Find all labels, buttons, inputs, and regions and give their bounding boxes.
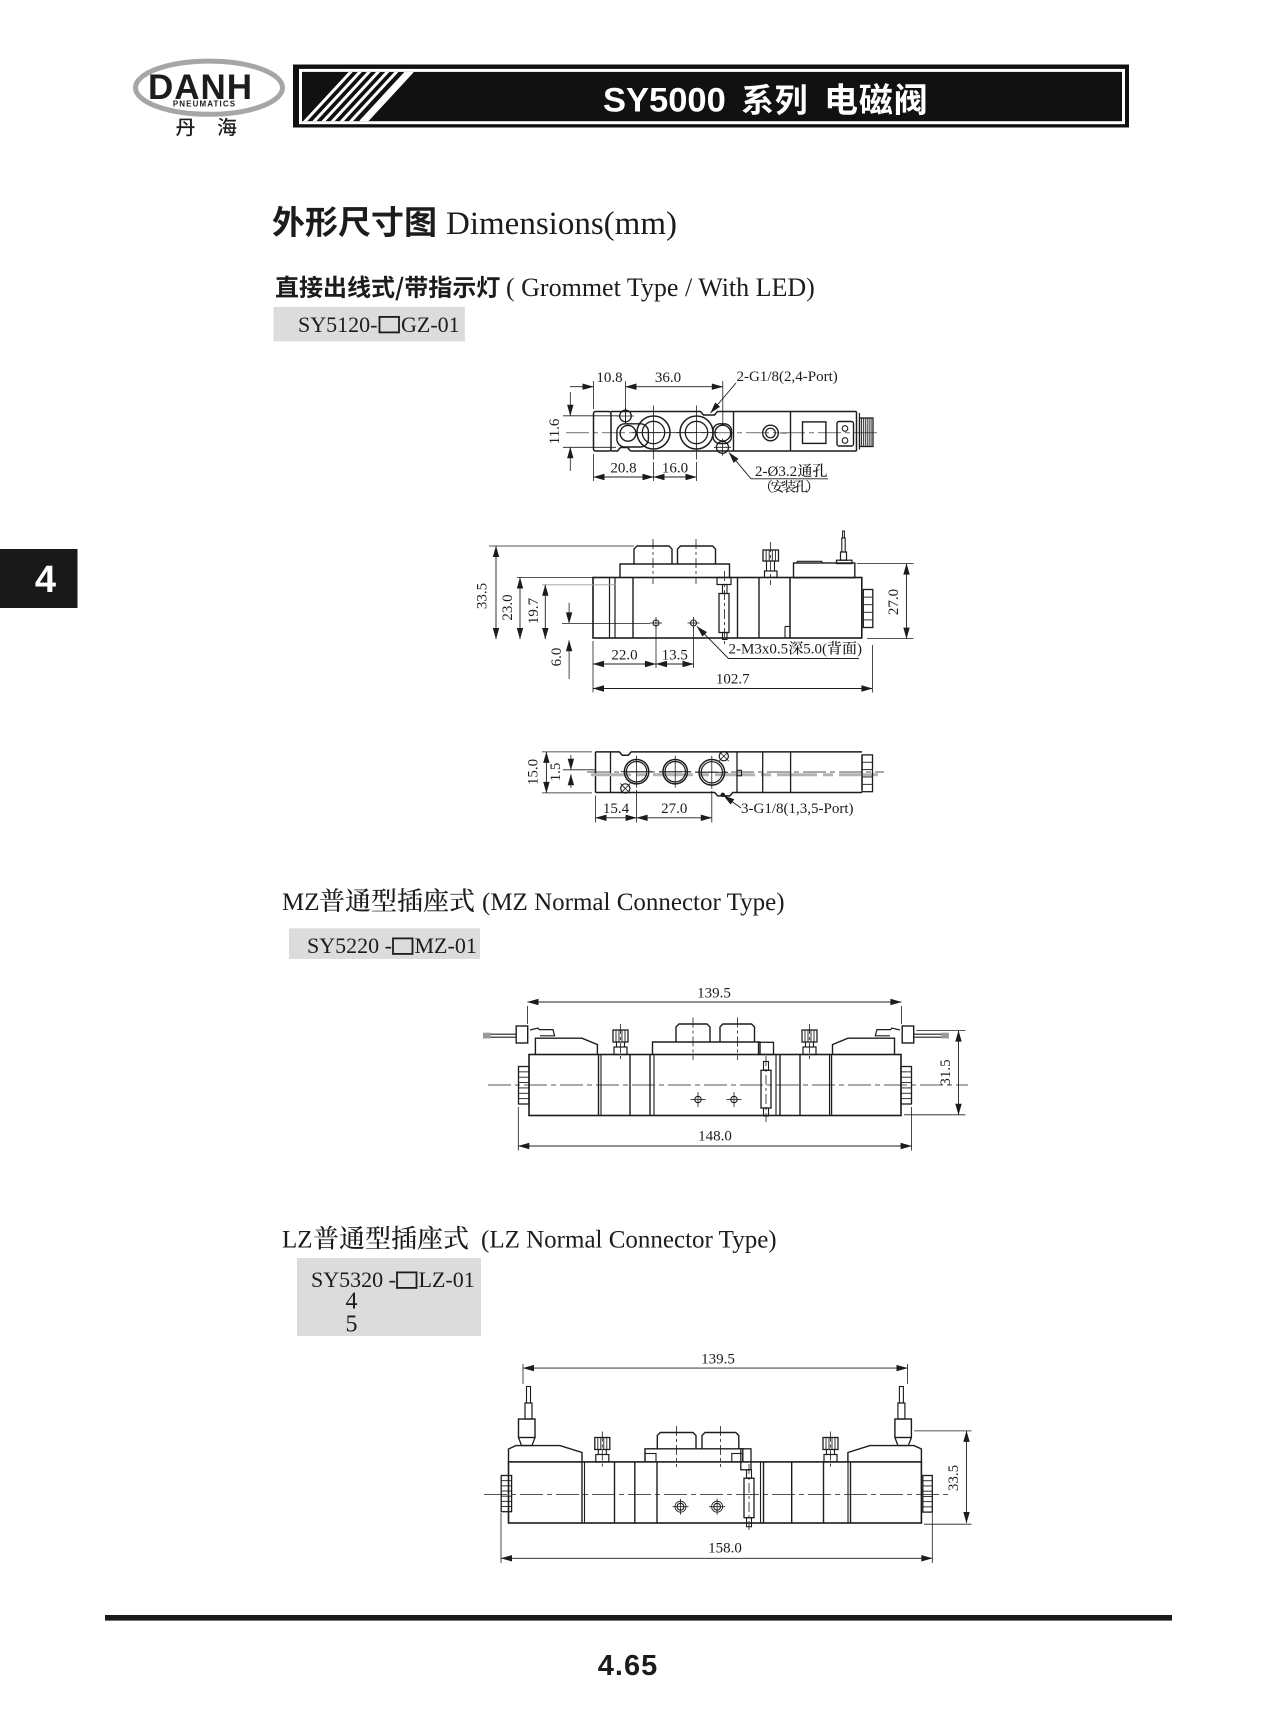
- svg-text:11.6: 11.6: [547, 418, 563, 444]
- svg-text:MZ: MZ: [282, 889, 320, 916]
- svg-text:4: 4: [35, 559, 56, 601]
- svg-text:SY5220 -: SY5220 -: [307, 933, 392, 958]
- svg-text:22.0: 22.0: [611, 648, 637, 664]
- svg-text:102.7: 102.7: [716, 672, 750, 688]
- svg-text:1.5: 1.5: [548, 763, 564, 782]
- svg-text:15.0: 15.0: [525, 759, 541, 785]
- svg-text:SY5120-: SY5120-: [298, 312, 377, 337]
- svg-text:33.5: 33.5: [946, 1465, 962, 1491]
- svg-text:16.0: 16.0: [662, 461, 688, 477]
- svg-text:LZ: LZ: [282, 1227, 313, 1254]
- svg-text:2-G1/8(2,4-Port): 2-G1/8(2,4-Port): [737, 369, 838, 385]
- svg-text:27.0: 27.0: [661, 801, 687, 817]
- svg-text:19.7: 19.7: [526, 597, 542, 624]
- svg-text:139.5: 139.5: [697, 986, 731, 1002]
- svg-text:23.0: 23.0: [500, 594, 516, 620]
- svg-text:2-Ø3.2: 2-Ø3.2: [755, 464, 797, 480]
- svg-text:(MZ Normal Connector Type): (MZ Normal Connector Type): [482, 889, 785, 916]
- svg-text:139.5: 139.5: [701, 1352, 735, 1368]
- svg-text:4.65: 4.65: [598, 1650, 658, 1682]
- svg-text:15.4: 15.4: [603, 801, 630, 817]
- svg-text:GZ-01: GZ-01: [401, 312, 460, 337]
- svg-text:(LZ Normal Connector Type): (LZ Normal Connector Type): [481, 1227, 777, 1254]
- svg-text:2-M3x0.5: 2-M3x0.5: [729, 642, 789, 658]
- svg-text:31.5: 31.5: [938, 1059, 954, 1085]
- svg-text:6.0: 6.0: [549, 648, 565, 667]
- svg-text:148.0: 148.0: [698, 1129, 732, 1145]
- svg-text:10.8: 10.8: [596, 370, 622, 386]
- svg-text:5.0(: 5.0(: [803, 642, 827, 658]
- svg-text:3-G1/8(1,3,5-Port): 3-G1/8(1,3,5-Port): [741, 801, 854, 817]
- svg-text:158.0: 158.0: [708, 1541, 742, 1557]
- svg-text:27.0: 27.0: [886, 589, 902, 615]
- svg-text:LZ-01: LZ-01: [419, 1267, 475, 1292]
- svg-text:33.5: 33.5: [475, 583, 491, 609]
- svg-text:( Grommet Type / With LED): ( Grommet Type / With LED): [506, 273, 815, 302]
- svg-text:MZ-01: MZ-01: [415, 933, 477, 958]
- svg-text:SY5000: SY5000: [603, 82, 726, 120]
- svg-text:13.5: 13.5: [662, 648, 688, 664]
- svg-text:36.0: 36.0: [655, 370, 681, 386]
- svg-text:): ): [857, 642, 862, 658]
- svg-text:20.8: 20.8: [610, 461, 636, 477]
- svg-text:Dimensions(mm): Dimensions(mm): [446, 206, 677, 242]
- svg-text:PNEUMATICS: PNEUMATICS: [173, 100, 236, 109]
- svg-text:5: 5: [346, 1312, 358, 1338]
